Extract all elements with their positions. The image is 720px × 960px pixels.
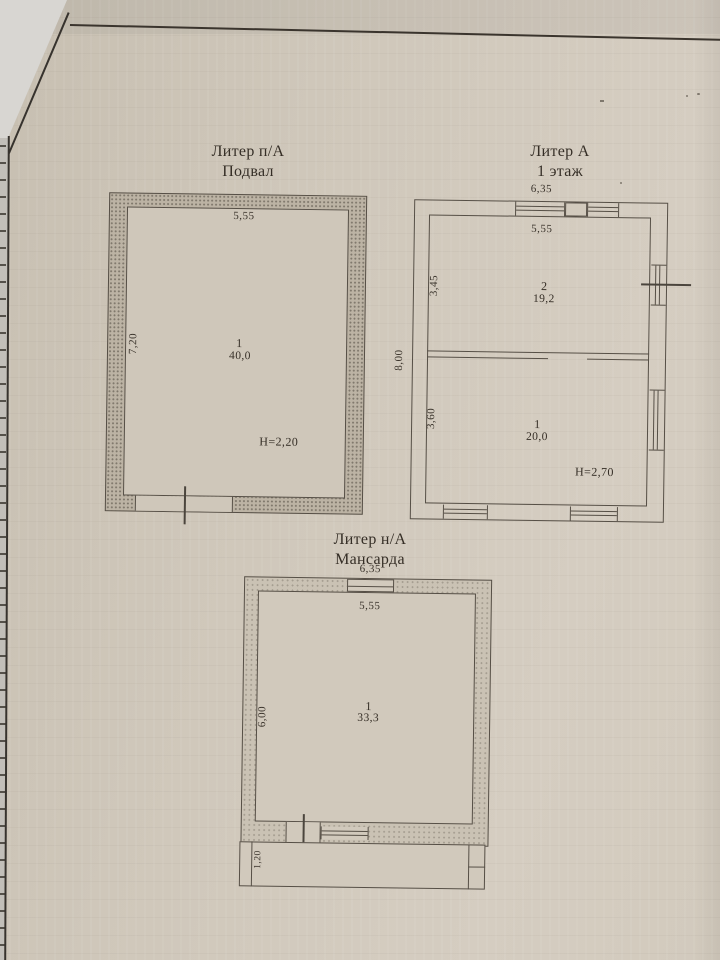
window-line bbox=[571, 510, 617, 512]
basement-title-line2: Подвал bbox=[148, 162, 348, 182]
window-line bbox=[322, 834, 368, 836]
floor1-plan: 6,35 5,55 8,00 3,45 2 19,2 3,60 1 20,0 Н… bbox=[410, 199, 668, 523]
window-symbol bbox=[649, 390, 665, 451]
basement-height-note: Н=2,20 bbox=[229, 434, 329, 450]
mansard-plan: 6,35 5,55 6,00 1 33,3 1,20 bbox=[240, 576, 492, 889]
window-line bbox=[571, 514, 617, 516]
chimney-line bbox=[348, 586, 393, 588]
window-line bbox=[322, 830, 368, 832]
window-symbol bbox=[443, 505, 488, 520]
basement-plan: 5,55 7,20 1 40,0 Н=2,20 bbox=[105, 192, 367, 515]
window-line bbox=[516, 210, 564, 212]
floor1-title-line1: Литер А bbox=[460, 142, 660, 162]
window-symbol bbox=[515, 202, 565, 217]
floor1-room2-area: 19,2 bbox=[494, 292, 594, 305]
window-line bbox=[588, 211, 618, 212]
floor1-room1-area: 20,0 bbox=[487, 430, 587, 443]
floor1-height-note: Н=2,70 bbox=[544, 464, 644, 480]
floor1-room2-dim-left: 3,45 bbox=[428, 265, 441, 305]
window-line bbox=[516, 206, 564, 208]
window-line bbox=[588, 207, 618, 208]
paper-top-shade bbox=[0, 0, 720, 34]
floor1-title-line2: 1 этаж bbox=[460, 162, 660, 182]
window-symbol bbox=[570, 506, 618, 521]
floor1-rooms-boundary bbox=[425, 214, 651, 506]
window-line bbox=[444, 509, 487, 511]
mansard-lower-strip bbox=[239, 841, 486, 889]
mansard-title-line1: Литер н/А bbox=[270, 530, 470, 550]
strip-divider bbox=[468, 866, 485, 867]
mansard-chimney bbox=[347, 579, 394, 593]
floor1-dim-top-inner: 5,55 bbox=[492, 222, 592, 235]
floor1-chimney bbox=[565, 202, 587, 216]
floor1-dim-left-outer: 8,00 bbox=[393, 340, 406, 380]
speck bbox=[600, 100, 604, 102]
floor1-dim-top-outer: 6,35 bbox=[491, 182, 591, 195]
mansard-strip-dim: 1,20 bbox=[253, 839, 264, 879]
basement-dim-left: 7,20 bbox=[127, 323, 140, 363]
window-line bbox=[653, 391, 655, 450]
mansard-dim-top-outer: 6,35 bbox=[320, 562, 420, 575]
floor1-room1-dim-left: 3,60 bbox=[425, 398, 438, 438]
window-line bbox=[444, 513, 487, 515]
basement-room-area: 40,0 bbox=[190, 349, 290, 362]
mansard-dim-top-inner: 5,55 bbox=[320, 599, 420, 612]
speck bbox=[620, 182, 622, 184]
paper-right-shade bbox=[694, 0, 720, 960]
window-symbol bbox=[321, 826, 369, 840]
speck bbox=[697, 93, 700, 95]
basement-dim-top: 5,55 bbox=[194, 209, 294, 222]
basement-title-line1: Литер п/А bbox=[148, 142, 348, 162]
basement-title: Литер п/А Подвал bbox=[148, 142, 348, 182]
window-symbol bbox=[587, 203, 619, 217]
speck bbox=[686, 95, 688, 97]
mansard-room-area: 33,3 bbox=[318, 711, 418, 724]
mansard-dim-left: 6,00 bbox=[256, 696, 269, 736]
floor1-title: Литер А 1 этаж bbox=[460, 142, 660, 182]
window-line bbox=[657, 391, 659, 450]
